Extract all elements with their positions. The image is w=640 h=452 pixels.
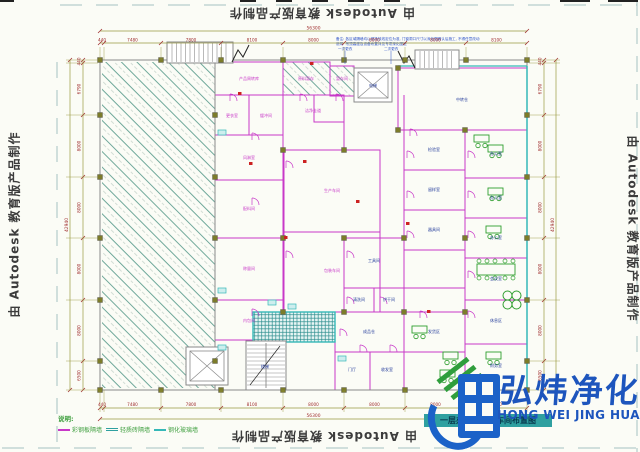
chair <box>503 259 507 263</box>
steel-panel-wall-symbol <box>58 429 70 431</box>
desk <box>412 326 427 333</box>
room-label: 休息区 <box>490 317 502 323</box>
door-arc <box>407 231 414 238</box>
tempered-glass-wall-symbol <box>154 429 166 431</box>
door-arc <box>390 345 397 352</box>
sink-fixture <box>338 356 346 361</box>
dim-label: 7800 <box>186 402 197 407</box>
dim-label: 440 <box>98 38 106 43</box>
dim-label: 6790 <box>77 83 82 94</box>
dim-label: 8000 <box>77 202 82 213</box>
planter-clover <box>503 300 512 309</box>
equipment-mark <box>284 236 288 239</box>
room-label: 发货区 <box>428 328 440 334</box>
room-label: 更衣室 <box>226 112 238 118</box>
hall-hatch <box>102 62 215 388</box>
dim-label: 8100 <box>247 402 258 407</box>
room-label: 暂存间 <box>336 75 348 81</box>
equipment-mark <box>238 92 242 95</box>
column <box>525 175 530 180</box>
column <box>463 310 468 315</box>
room-label: 原料暂存 <box>298 75 314 81</box>
room-label: 称量间 <box>243 265 255 271</box>
dim-label: 440 <box>77 57 82 65</box>
column <box>98 298 103 303</box>
column <box>98 236 103 241</box>
room-label: 产品周转库 <box>239 75 259 81</box>
door-arc <box>286 251 293 258</box>
room-label: 包装车间 <box>324 267 340 273</box>
column <box>342 310 347 315</box>
autodesk-watermark-left: 由 Autodesk 教育版产品制作 <box>6 125 23 325</box>
logo-building-shape <box>458 374 500 438</box>
room-label: 办公室 <box>490 194 502 200</box>
dim-total-label: 42940 <box>550 218 556 232</box>
legend-label: 轻质砖隔墙 <box>120 425 150 434</box>
room <box>330 66 354 96</box>
door-arc <box>407 151 414 158</box>
column <box>525 236 530 241</box>
dim-label: 8000 <box>369 402 380 407</box>
dim-label: 8000 <box>77 263 82 274</box>
room-label: 中转仓 <box>456 96 468 102</box>
dim-total-label: 56300 <box>307 26 321 32</box>
logo-window <box>482 382 493 395</box>
room-label: 收发室 <box>381 366 393 372</box>
chair <box>414 334 418 338</box>
dim-label: 8000 <box>430 38 441 43</box>
column <box>396 66 401 71</box>
dim-label: 8000 <box>538 263 543 274</box>
cad-floorplan-screenshot: 产品周转库原料暂存暂存间中转仓更衣室缓冲间风淋室洁净走道配料间生产车间包装车间称… <box>0 0 640 452</box>
dim-label: 440 <box>98 402 106 407</box>
room-label: 配料间 <box>243 205 255 211</box>
room-label: 成品仓 <box>363 328 375 334</box>
desk <box>488 188 503 195</box>
column <box>525 298 530 303</box>
sink-fixture <box>218 288 226 293</box>
room-label: 门厅 <box>348 366 356 372</box>
door-arc <box>252 133 259 140</box>
room-label: 楼梯 <box>261 363 269 369</box>
dim-label: 8000 <box>308 38 319 43</box>
dim-label: 8000 <box>538 140 543 151</box>
sink-fixture <box>288 304 296 309</box>
callout-text: 二次更衣 <box>384 46 399 51</box>
note-text: 备注: 各区域隔墙均以现场放线定位为准, 门窗洞口尺寸以深化图确认后施工, 不得… <box>336 36 480 41</box>
sink-fixture <box>218 130 226 135</box>
chair <box>483 143 487 147</box>
dim-label: 6790 <box>538 83 543 94</box>
room <box>253 312 335 342</box>
dim-label: 7480 <box>127 38 138 43</box>
equipment-mark <box>427 310 431 313</box>
room-label: 留样室 <box>428 186 440 192</box>
room-label: 办公室 <box>490 150 502 156</box>
column <box>98 359 103 364</box>
chair <box>421 334 425 338</box>
room-label: 会议室 <box>490 275 502 281</box>
equipment-mark <box>249 162 253 165</box>
chair <box>477 259 481 263</box>
dim-label: 7800 <box>186 38 197 43</box>
room <box>404 250 465 288</box>
chair <box>511 276 515 280</box>
legend-label: 钢化玻璃墙 <box>168 425 198 434</box>
room-label: 生产车间 <box>324 187 340 193</box>
dim-total-label: 42940 <box>64 218 70 232</box>
door-arc <box>468 151 475 158</box>
chair <box>493 259 497 263</box>
sink-fixture <box>268 300 276 305</box>
legend-items: 彩钢板隔墙 轻质砖隔墙 钢化玻璃墙 <box>58 425 198 434</box>
door-arc <box>468 311 475 318</box>
equipment-mark <box>303 160 307 163</box>
dim-label: 8000 <box>77 140 82 151</box>
column <box>463 236 468 241</box>
dim-label: 8000 <box>369 38 380 43</box>
room-label: 工具间 <box>368 257 380 263</box>
company-name-chinese: 弘炜净化 <box>498 364 640 412</box>
room <box>344 238 404 288</box>
light-brick-wall-symbol <box>106 428 118 431</box>
planter-clover <box>512 300 521 309</box>
dim-label: 8000 <box>77 325 82 336</box>
room-label: 内包间 <box>243 317 255 323</box>
room-label: 器具间 <box>428 226 440 232</box>
desk <box>474 135 489 142</box>
stair-block <box>415 50 459 69</box>
column <box>98 175 103 180</box>
stair-break-mark <box>232 45 249 62</box>
dim-label: 8100 <box>491 38 502 43</box>
chair <box>485 259 489 263</box>
chair <box>511 259 515 263</box>
planter-clover <box>512 291 521 300</box>
autodesk-watermark-bottom: 由 Autodesk 教育版产品制作 <box>224 428 424 445</box>
chair <box>485 276 489 280</box>
column <box>213 298 218 303</box>
column <box>98 113 103 118</box>
column <box>525 113 530 118</box>
autodesk-watermark-right: 由 Autodesk 教育版产品制作 <box>625 129 640 329</box>
room-label: 清洗间 <box>353 296 365 302</box>
room-label: 缓冲间 <box>260 112 272 118</box>
equipment-mark <box>310 62 314 65</box>
room-label: 办公室 <box>490 234 502 240</box>
column <box>281 310 286 315</box>
wall-legend: 说明: 彩钢板隔墙 轻质砖隔墙 钢化玻璃墙 <box>58 413 198 434</box>
company-logo: 弘炜净化 HONG WEI JING HUA <box>428 356 640 452</box>
chair <box>476 143 480 147</box>
column <box>463 128 468 133</box>
chair <box>503 276 507 280</box>
logo-window <box>465 403 476 416</box>
legend-item-tempered-glass: 钢化玻璃墙 <box>154 425 198 434</box>
logo-window <box>482 403 493 416</box>
door-arc <box>286 161 293 168</box>
equipment-mark <box>356 200 360 203</box>
column <box>342 148 347 153</box>
door-arc <box>347 251 354 258</box>
desk <box>486 226 501 233</box>
dim-label: 8000 <box>538 325 543 336</box>
dim-label: 7480 <box>127 402 138 407</box>
legend-item-light-brick: 轻质砖隔墙 <box>106 425 150 434</box>
planter-clover <box>503 291 512 300</box>
sink-fixture <box>218 345 226 350</box>
room-label: 检验室 <box>428 146 440 152</box>
chair <box>477 276 481 280</box>
logo-window <box>465 382 476 395</box>
column <box>402 310 407 315</box>
column <box>213 175 218 180</box>
door-arc <box>407 191 414 198</box>
logo-window <box>465 424 493 431</box>
dim-total-label: 56300 <box>307 413 321 419</box>
room-label: 烘干间 <box>383 296 395 302</box>
door-arc <box>468 191 475 198</box>
dim-label: 8000 <box>308 402 319 407</box>
column <box>213 359 218 364</box>
dim-label: 440 <box>538 57 543 65</box>
company-name-english: HONG WEI JING HUA <box>497 408 640 422</box>
legend-title: 说明: <box>58 413 198 423</box>
legend-label: 彩钢板隔墙 <box>72 425 102 434</box>
door-arc <box>252 198 259 205</box>
meeting-table <box>477 264 515 275</box>
dim-label: 8000 <box>538 202 543 213</box>
column <box>281 148 286 153</box>
autodesk-watermark-top: 由 Autodesk 教育版产品制作 <box>222 5 422 22</box>
dim-label: 6500 <box>77 370 82 381</box>
column <box>402 236 407 241</box>
door-arc <box>360 345 367 352</box>
dim-label: 8100 <box>247 38 258 43</box>
column <box>342 236 347 241</box>
room-label: 风淋室 <box>243 154 255 160</box>
door-arc <box>468 271 475 278</box>
door-arc <box>340 329 347 336</box>
room-label: 洁净走道 <box>305 107 321 113</box>
equipment-mark <box>406 222 410 225</box>
room-label: 电梯 <box>369 82 377 88</box>
column <box>396 128 401 133</box>
callout-text: 一次更衣 <box>338 46 353 51</box>
column <box>213 113 218 118</box>
legend-item-steel-panel: 彩钢板隔墙 <box>58 425 102 434</box>
column <box>213 236 218 241</box>
door-arc <box>468 231 475 238</box>
